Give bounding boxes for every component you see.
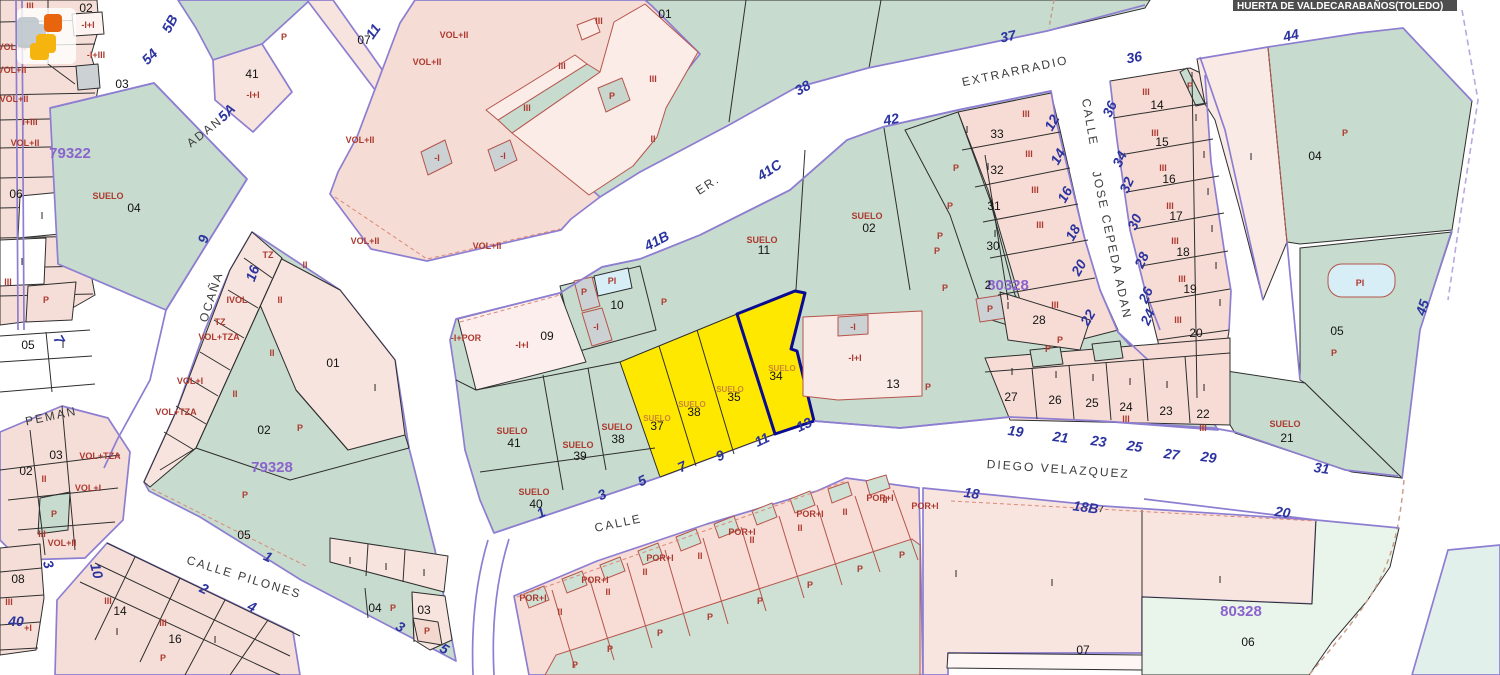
svg-text:02: 02 (79, 1, 93, 15)
svg-text:I: I (987, 162, 990, 173)
svg-text:VOL+TZA: VOL+TZA (79, 451, 121, 461)
svg-text:-I+I: -I+I (81, 20, 94, 30)
svg-text:P: P (160, 653, 166, 663)
svg-text:I: I (1195, 113, 1198, 124)
svg-text:25: 25 (1085, 396, 1099, 410)
svg-text:TZ: TZ (215, 317, 226, 327)
svg-text:25: 25 (1125, 437, 1144, 455)
svg-text:P: P (581, 287, 587, 297)
svg-text:I: I (966, 125, 969, 136)
svg-text:III: III (1174, 315, 1182, 325)
svg-text:P: P (281, 32, 287, 42)
svg-text:44: 44 (1281, 26, 1301, 45)
svg-text:80328: 80328 (987, 277, 1029, 294)
svg-text:P: P (1057, 335, 1063, 345)
svg-text:I: I (1219, 575, 1222, 586)
svg-text:III: III (1031, 185, 1039, 195)
svg-text:26: 26 (1048, 393, 1062, 407)
svg-text:20: 20 (1273, 503, 1292, 521)
svg-text:VOL+II: VOL+II (346, 135, 375, 145)
svg-text:II: II (642, 567, 647, 577)
svg-text:VOL+II: VOL+II (48, 538, 77, 548)
svg-text:18: 18 (963, 484, 981, 502)
svg-text:P: P (657, 628, 663, 638)
svg-text:07: 07 (357, 33, 371, 47)
svg-text:I: I (1007, 301, 1010, 312)
svg-text:III: III (1199, 423, 1207, 433)
svg-text:III: III (1151, 128, 1159, 138)
svg-text:P: P (807, 580, 813, 590)
svg-text:VOL+I: VOL+I (75, 483, 101, 493)
svg-text:III: III (1171, 236, 1179, 246)
svg-text:I: I (994, 229, 997, 240)
svg-text:I: I (1203, 383, 1206, 394)
svg-text:-I+POR: -I+POR (451, 333, 482, 343)
svg-text:II: II (842, 507, 847, 517)
svg-text:III: III (1036, 220, 1044, 230)
svg-text:VOL+II: VOL+II (0, 65, 26, 75)
svg-text:I: I (1092, 373, 1095, 384)
svg-text:P: P (757, 596, 763, 606)
svg-text:III: III (4, 277, 12, 287)
svg-text:PI: PI (1356, 278, 1365, 288)
svg-text:P: P (1342, 128, 1348, 138)
svg-text:I: I (116, 627, 119, 638)
svg-text:14: 14 (1150, 98, 1164, 112)
svg-text:P: P (424, 626, 430, 636)
svg-text:III: III (558, 61, 566, 71)
svg-text:08: 08 (11, 572, 25, 586)
svg-text:SUELO: SUELO (496, 426, 527, 436)
svg-text:SUELO: SUELO (92, 191, 123, 201)
svg-text:-I+I: -I+I (848, 353, 861, 363)
svg-text:10: 10 (610, 298, 624, 312)
svg-text:VOL+II: VOL+II (440, 30, 469, 40)
svg-text:II: II (269, 348, 274, 358)
svg-text:III: III (1142, 87, 1150, 97)
svg-text:SUELO: SUELO (678, 400, 706, 409)
svg-text:27: 27 (1004, 390, 1018, 404)
svg-text:III: III (595, 16, 603, 26)
svg-text:SUELO: SUELO (768, 364, 796, 373)
svg-text:III: III (1178, 274, 1186, 284)
svg-text:13: 13 (886, 377, 900, 391)
svg-text:TZ: TZ (263, 250, 274, 260)
svg-text:41: 41 (507, 436, 521, 450)
svg-text:I: I (374, 383, 377, 394)
svg-text:III: III (523, 103, 531, 113)
svg-text:14: 14 (113, 604, 127, 618)
svg-text:03: 03 (417, 603, 431, 617)
svg-text:07: 07 (1076, 643, 1090, 657)
svg-text:I: I (349, 556, 352, 567)
svg-text:02: 02 (862, 221, 876, 235)
svg-text:SUELO: SUELO (601, 422, 632, 432)
svg-text:39: 39 (573, 449, 587, 463)
svg-text:SUELO: SUELO (518, 487, 549, 497)
svg-text:80328: 80328 (1220, 603, 1262, 620)
svg-text:VOL+I: VOL+I (177, 376, 203, 386)
svg-text:41: 41 (245, 67, 259, 81)
svg-text:I: I (1129, 377, 1132, 388)
svg-text:POR+I: POR+I (581, 575, 608, 585)
svg-text:II: II (797, 523, 802, 533)
svg-text:I: I (1051, 578, 1054, 589)
svg-text:POR+I: POR+I (796, 509, 823, 519)
svg-text:P: P (942, 283, 948, 293)
svg-text:P: P (707, 612, 713, 622)
svg-text:I: I (1211, 224, 1214, 235)
svg-text:III: III (1122, 414, 1130, 424)
svg-text:III: III (38, 529, 46, 539)
svg-text:P: P (1045, 344, 1051, 354)
svg-text:P: P (987, 304, 993, 314)
svg-text:-I+I: -I+I (246, 90, 259, 100)
svg-text:33: 33 (990, 127, 1004, 141)
svg-text:40: 40 (7, 613, 24, 629)
svg-text:2: 2 (985, 278, 992, 292)
svg-text:VOL+TZA: VOL+TZA (155, 407, 197, 417)
svg-text:I+III: I+III (22, 117, 37, 127)
svg-text:P: P (43, 295, 49, 305)
svg-text:04: 04 (368, 601, 382, 615)
svg-text:II: II (557, 607, 562, 617)
svg-text:21: 21 (1280, 431, 1294, 445)
svg-text:11: 11 (758, 243, 771, 257)
svg-text:01: 01 (326, 356, 340, 370)
svg-text:30: 30 (986, 239, 1000, 253)
svg-text:SUELO: SUELO (746, 235, 777, 245)
svg-text:VOL+II: VOL+II (351, 236, 380, 246)
svg-text:VOL+II: VOL+II (0, 94, 28, 104)
svg-text:III: III (649, 74, 657, 84)
svg-text:III: III (1159, 163, 1167, 173)
svg-text:SUELO: SUELO (1269, 419, 1300, 429)
svg-text:-I: -I (500, 151, 506, 161)
svg-text:III: III (1166, 201, 1174, 211)
svg-text:P: P (609, 91, 615, 101)
svg-text:I: I (21, 257, 24, 268)
svg-text:I: I (62, 340, 65, 351)
svg-text:I: I (423, 568, 426, 579)
svg-text:28: 28 (1032, 313, 1046, 327)
svg-text:P: P (51, 509, 57, 519)
svg-text:II: II (749, 535, 754, 545)
svg-text:P: P (297, 423, 303, 433)
svg-text:III: III (1051, 300, 1059, 310)
svg-text:I: I (1250, 152, 1253, 163)
svg-text:VOL+II: VOL+II (413, 57, 442, 67)
svg-text:79328: 79328 (251, 459, 293, 476)
svg-text:29: 29 (1199, 448, 1218, 466)
svg-text:II: II (41, 474, 46, 484)
svg-text:16: 16 (1162, 172, 1176, 186)
svg-text:SUELO: SUELO (716, 385, 744, 394)
svg-text:05: 05 (21, 338, 35, 352)
svg-text:I: I (991, 197, 994, 208)
svg-text:SUELO: SUELO (851, 211, 882, 221)
svg-text:19: 19 (1007, 422, 1025, 440)
svg-text:02: 02 (19, 464, 33, 478)
svg-text:16: 16 (168, 632, 182, 646)
svg-text:SUELO: SUELO (643, 414, 671, 423)
svg-text:I: I (1166, 380, 1169, 391)
svg-text:II: II (302, 260, 307, 270)
svg-text:06: 06 (9, 187, 23, 201)
svg-text:III: III (1022, 109, 1030, 119)
svg-text:P: P (572, 660, 578, 670)
svg-text:79322: 79322 (49, 145, 91, 162)
svg-text:POR+I: POR+I (866, 493, 893, 503)
svg-text:I: I (1207, 187, 1210, 198)
svg-text:P: P (857, 564, 863, 574)
svg-text:20: 20 (1189, 326, 1203, 340)
svg-text:P: P (607, 644, 613, 654)
svg-text:VOL+II: VOL+II (11, 138, 40, 148)
svg-text:III: III (104, 596, 112, 606)
svg-text:36: 36 (1125, 48, 1143, 66)
svg-text:05: 05 (237, 528, 251, 542)
svg-text:21: 21 (1051, 428, 1070, 446)
svg-text:06: 06 (1241, 635, 1255, 649)
svg-text:II: II (882, 495, 887, 505)
svg-text:II: II (697, 551, 702, 561)
svg-text:II: II (277, 295, 282, 305)
svg-text:SUELO: SUELO (562, 440, 593, 450)
svg-text:II: II (650, 134, 655, 144)
svg-text:I: I (214, 635, 217, 646)
svg-text:I: I (955, 569, 958, 580)
svg-text:I: I (1011, 367, 1014, 378)
svg-text:P: P (947, 201, 953, 211)
svg-text:22: 22 (1196, 407, 1210, 421)
svg-text:04: 04 (1308, 149, 1322, 163)
svg-text:40: 40 (529, 497, 543, 511)
svg-text:-I: -I (850, 322, 856, 332)
svg-text:II: II (605, 587, 610, 597)
svg-text:03: 03 (49, 448, 63, 462)
svg-text:+I: +I (24, 623, 32, 633)
svg-text:POR+I: POR+I (646, 553, 673, 563)
svg-text:31: 31 (987, 199, 1001, 213)
svg-text:II: II (232, 389, 237, 399)
svg-text:VOL+II: VOL+II (473, 241, 502, 251)
svg-text:42: 42 (881, 110, 900, 129)
svg-text:P: P (390, 603, 396, 613)
svg-text:-I: -I (434, 153, 440, 163)
svg-text:P: P (661, 297, 667, 307)
svg-text:38: 38 (611, 432, 625, 446)
svg-text:P: P (937, 231, 943, 241)
svg-text:32: 32 (990, 163, 1004, 177)
svg-text:-I: -I (593, 322, 599, 332)
svg-text:P: P (934, 246, 940, 256)
svg-text:III: III (159, 618, 167, 628)
svg-text:23: 23 (1159, 404, 1173, 418)
svg-text:HUERTA DE VALDECARABAÑOS(TOLED: HUERTA DE VALDECARABAÑOS(TOLEDO) (1237, 0, 1443, 12)
svg-text:POR+I: POR+I (519, 593, 546, 603)
svg-text:P: P (1187, 81, 1193, 91)
svg-text:17: 17 (1169, 209, 1183, 223)
svg-text:02: 02 (257, 423, 271, 437)
svg-text:03: 03 (115, 77, 129, 91)
svg-text:P: P (242, 490, 248, 500)
svg-text:04: 04 (127, 201, 141, 215)
svg-text:I: I (385, 562, 388, 573)
svg-text:P: P (953, 163, 959, 173)
svg-text:23: 23 (1089, 432, 1108, 450)
svg-text:P: P (1331, 348, 1337, 358)
svg-text:PI: PI (608, 276, 617, 286)
svg-text:19: 19 (1183, 282, 1197, 296)
svg-text:I: I (1203, 150, 1206, 161)
svg-text:VOL+TZA: VOL+TZA (198, 332, 240, 342)
svg-text:I: I (1055, 370, 1058, 381)
svg-text:III: III (5, 597, 13, 607)
svg-text:-I+I: -I+I (515, 340, 528, 350)
svg-text:09: 09 (540, 329, 554, 343)
svg-text:-I+III: -I+III (87, 50, 105, 60)
svg-text:I: I (1215, 261, 1218, 272)
svg-text:I: I (41, 211, 44, 222)
svg-text:18: 18 (1176, 245, 1190, 259)
svg-text:24: 24 (1119, 400, 1133, 414)
svg-text:P: P (925, 382, 931, 392)
svg-text:P: P (899, 550, 905, 560)
svg-text:I: I (1219, 298, 1222, 309)
svg-text:IVOL: IVOL (226, 295, 248, 305)
svg-text:III: III (1025, 149, 1033, 159)
svg-text:POR+I: POR+I (911, 501, 938, 511)
svg-text:05: 05 (1330, 324, 1344, 338)
svg-text:31: 31 (1313, 459, 1331, 477)
svg-text:01: 01 (658, 7, 672, 21)
